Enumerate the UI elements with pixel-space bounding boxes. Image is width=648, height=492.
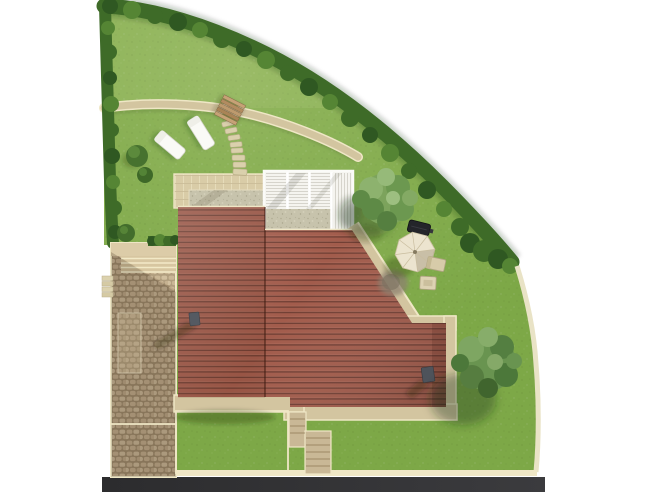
house-shadow xyxy=(175,410,275,424)
stepping-stone xyxy=(233,162,246,168)
foliage-blob xyxy=(478,327,498,347)
hedge-blob xyxy=(280,65,296,81)
garden-stool xyxy=(420,276,437,290)
hedge-blob xyxy=(436,201,452,217)
site-plan-stage xyxy=(0,0,648,492)
stepping-stone xyxy=(230,141,242,147)
stool-inset xyxy=(423,280,432,286)
chimney-body xyxy=(189,312,200,326)
bush-highlight xyxy=(120,226,128,234)
hedge-blob xyxy=(105,123,119,137)
hedge-blob xyxy=(213,30,231,48)
side-step xyxy=(102,276,113,281)
hedge-blob xyxy=(322,94,338,110)
foliage-blob xyxy=(377,211,397,231)
foliage-blob xyxy=(506,353,522,369)
hedge-blob xyxy=(106,175,120,189)
stair-flight xyxy=(289,412,306,447)
hedge-blob xyxy=(101,21,115,35)
hedge-blob xyxy=(104,148,120,164)
hedge-blob xyxy=(300,78,318,96)
foliage-blob xyxy=(478,378,498,398)
hedge-blob xyxy=(192,22,208,38)
stepping-stone xyxy=(233,169,247,176)
chimney-body xyxy=(421,366,435,383)
bush-highlight xyxy=(128,146,140,158)
side-step xyxy=(102,282,113,287)
hedge-blob xyxy=(236,41,252,57)
site-plan-rendering xyxy=(0,0,648,492)
bush-highlight xyxy=(139,168,147,176)
foliage-blob xyxy=(402,190,418,206)
hedge-blob xyxy=(101,44,117,60)
stepping-stone xyxy=(231,148,243,154)
side-step xyxy=(102,293,113,298)
hedge-blob xyxy=(257,51,275,69)
foliage-blob xyxy=(487,354,503,370)
hedge-blob xyxy=(418,181,436,199)
pergola-gravel-floor xyxy=(266,209,331,229)
street xyxy=(102,477,545,492)
foliage-blob xyxy=(386,191,400,205)
foliage-blob xyxy=(451,354,469,372)
foliage-blob xyxy=(352,190,370,208)
hedge-blob xyxy=(123,1,141,19)
hedge-blob xyxy=(147,8,163,24)
hedge-blob xyxy=(451,218,469,236)
side-step xyxy=(102,287,113,292)
driveway-courtyard xyxy=(102,243,176,477)
hedge-blob xyxy=(362,127,378,143)
hedge-blob xyxy=(169,13,187,31)
foliage-blob xyxy=(377,168,395,186)
hedge-blob xyxy=(106,200,122,216)
hedge-blob xyxy=(502,258,518,274)
hedge-blob xyxy=(341,109,359,127)
hedge-blob xyxy=(103,71,117,85)
hedge-blob xyxy=(103,96,119,112)
hedge-blob xyxy=(381,144,399,162)
stepping-stone xyxy=(232,155,245,161)
